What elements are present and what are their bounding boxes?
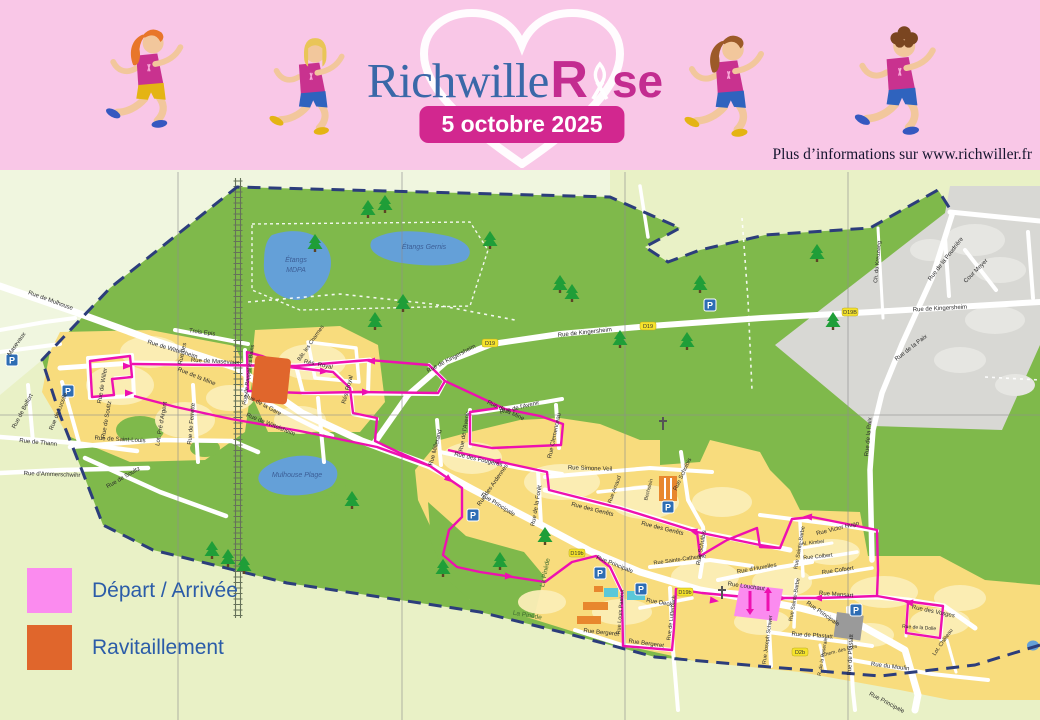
legend-item-depart: Départ / Arrivée — [27, 568, 238, 613]
parcel — [518, 590, 566, 614]
course-map: D19D19D19BD19bD19bD2bPPPPPPPPRue de Mulh… — [0, 170, 1040, 720]
tree-trunk — [227, 564, 229, 567]
parking-letter: P — [638, 585, 644, 595]
water-label: MDPA — [286, 267, 306, 274]
tree-trunk — [571, 299, 573, 302]
parking-letter: P — [597, 569, 603, 579]
parcel — [934, 347, 986, 373]
runner-figure — [88, 22, 204, 153]
event-title: RichwilleRse — [367, 50, 663, 110]
map-legend: Départ / Arrivée Ravitaillement — [27, 568, 238, 670]
parking-letter: P — [665, 503, 671, 513]
tree-trunk — [544, 542, 546, 545]
tree-trunk — [832, 327, 834, 330]
parcel — [965, 306, 1025, 334]
event-poster: RichwilleRse 5 octobre 2025 Plus d’infor… — [0, 0, 1040, 720]
tree-trunk — [402, 309, 404, 312]
event-banner: RichwilleRse 5 octobre 2025 Plus d’infor… — [0, 0, 1040, 170]
title-r: R — [550, 50, 588, 110]
tree-trunk — [351, 506, 353, 509]
date-badge: 5 octobre 2025 — [419, 106, 624, 143]
tree-trunk — [489, 246, 491, 249]
title-richwille: Richwille — [367, 52, 549, 109]
tree-trunk — [559, 290, 561, 293]
building — [583, 602, 608, 610]
water-label: Étangs Gernis — [402, 242, 447, 251]
parking-letter: P — [853, 606, 859, 616]
info-text: Plus d’informations sur www.richwiller.f… — [773, 146, 1032, 164]
road-number-label: D19 — [643, 324, 653, 330]
water-label: Étangs — [285, 255, 307, 264]
tree-trunk — [442, 574, 444, 577]
legend-item-ravitaillement: Ravitaillement — [27, 625, 238, 670]
tree-trunk — [619, 345, 621, 348]
legend-label: Ravitaillement — [92, 636, 224, 660]
tree-trunk — [211, 556, 213, 559]
runner-figure — [252, 32, 364, 159]
ravitaillement-swatch — [27, 625, 72, 670]
parcel — [692, 487, 752, 517]
tree-trunk — [686, 347, 688, 350]
tree-trunk — [699, 290, 701, 293]
pool — [604, 588, 618, 597]
title-se: se — [612, 54, 663, 108]
tree-trunk — [374, 327, 376, 330]
road-number-label: D19B — [843, 310, 857, 316]
runner-figure — [836, 24, 957, 161]
road-number-label: D2b — [795, 650, 805, 656]
tree-trunk — [243, 571, 245, 574]
ravitaillement-marker — [251, 355, 292, 405]
tree-trunk — [816, 259, 818, 262]
road-number-label: D19 — [485, 341, 495, 347]
legend-label: Départ / Arrivée — [92, 579, 238, 603]
tree-trunk — [314, 249, 316, 252]
tree-trunk — [384, 210, 386, 213]
tree-trunk — [367, 215, 369, 218]
pink-ribbon-icon — [589, 61, 611, 106]
road — [368, 360, 369, 393]
road-number-label: D19b — [678, 590, 691, 596]
parking-letter: P — [707, 301, 713, 311]
road-number-label: D19b — [570, 551, 583, 557]
building — [577, 616, 601, 624]
depart-arrivee-swatch — [27, 568, 72, 613]
runner-figure — [666, 28, 785, 163]
tree-trunk — [499, 567, 501, 570]
water-label: Mulhouse Plage — [272, 472, 322, 479]
building — [594, 586, 603, 592]
parking-letter: P — [470, 511, 476, 521]
